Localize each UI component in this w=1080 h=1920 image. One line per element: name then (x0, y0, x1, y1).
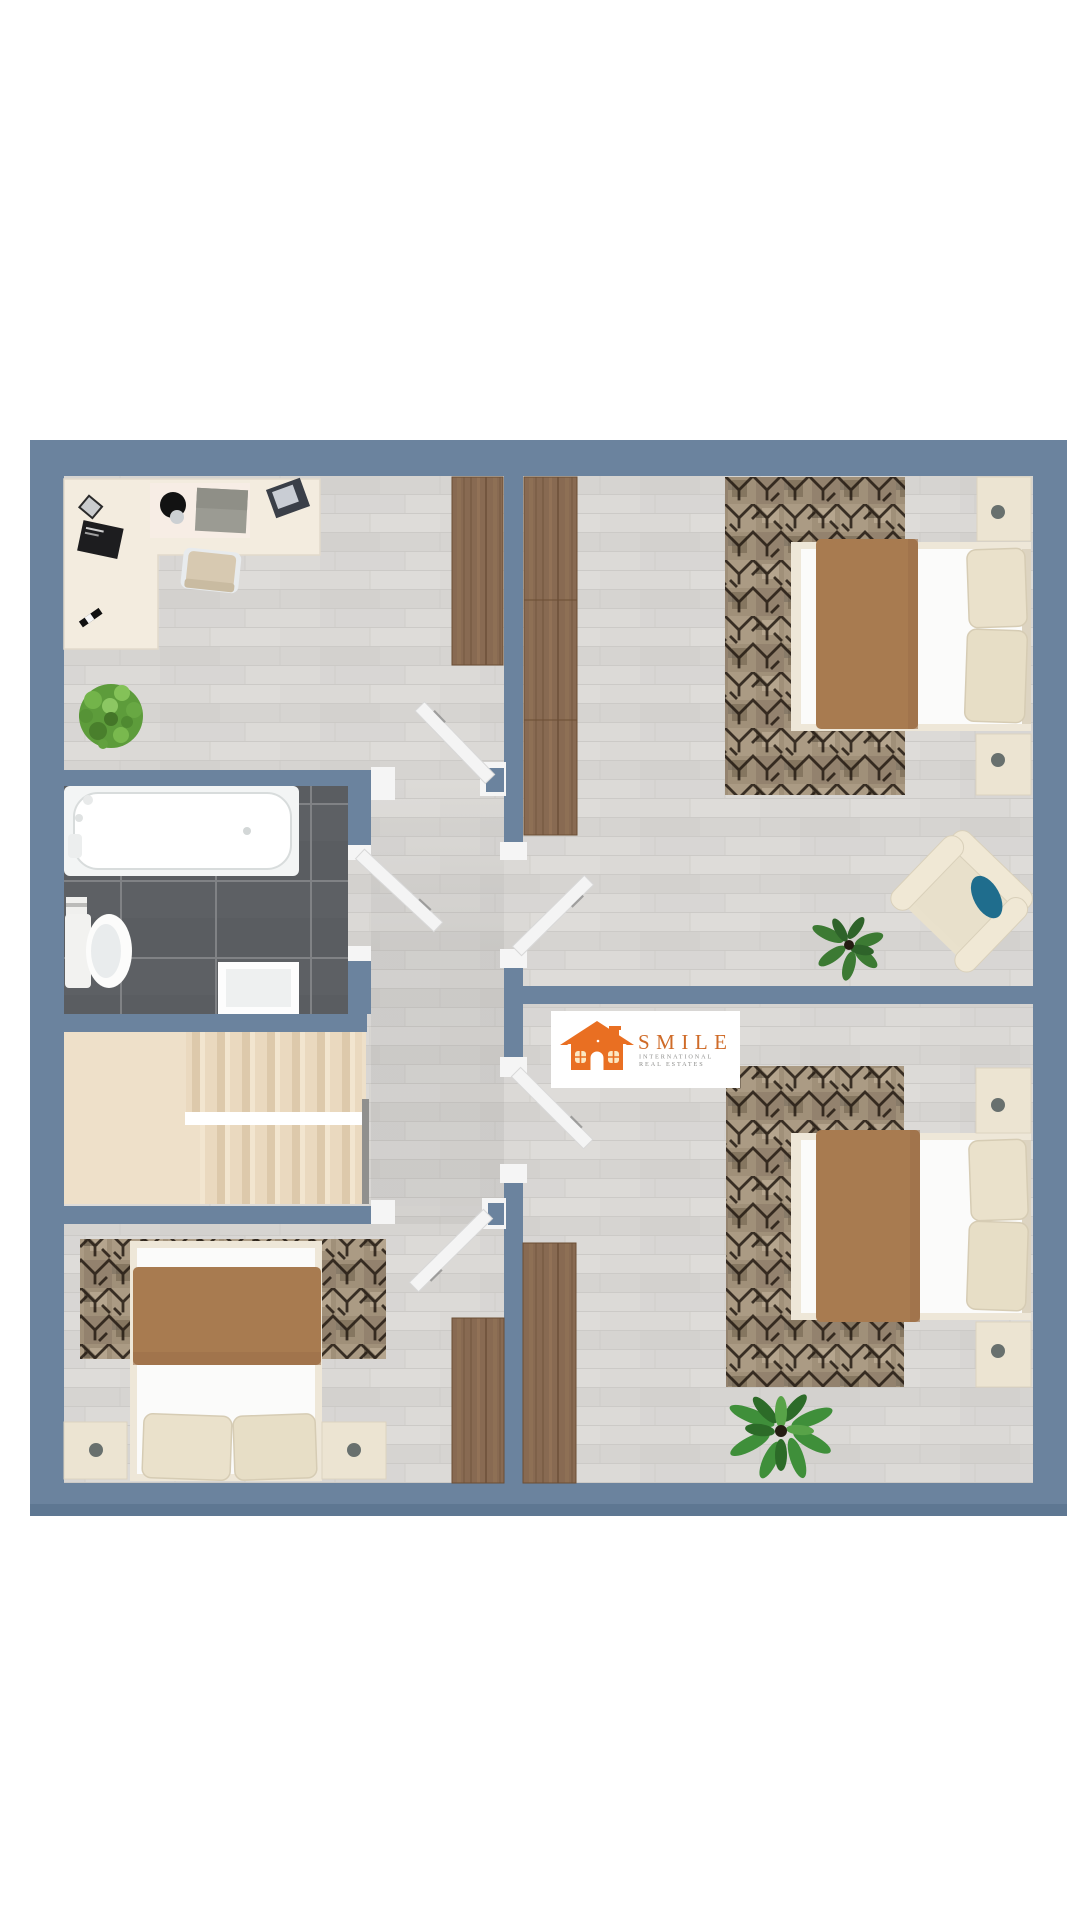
svg-text:INTERNATIONAL: INTERNATIONAL (639, 1054, 713, 1061)
svg-text:SMILE: SMILE (638, 1030, 734, 1054)
svg-text:REAL ESTATES: REAL ESTATES (639, 1061, 705, 1068)
